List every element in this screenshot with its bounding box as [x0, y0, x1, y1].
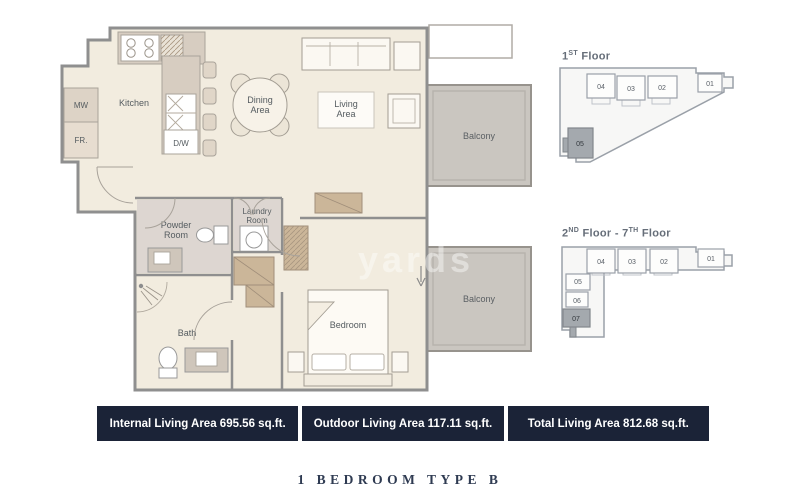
microwave-label: MW: [74, 101, 89, 110]
kp1-unit-01-label: 01: [706, 81, 714, 88]
kp2-title-s1: ND: [568, 227, 579, 234]
kp2-unit-04-label: 04: [597, 259, 605, 266]
kp1-title-sup: ST: [568, 50, 578, 57]
kp1-unit-05-label: 05: [576, 141, 584, 148]
dining-area-label-2: Area: [250, 105, 269, 115]
powder-room-label-1: Powder: [161, 220, 192, 230]
laundry-room-label-1: Laundry: [243, 207, 272, 216]
bedroom-label: Bedroom: [330, 320, 367, 330]
balcony-top-label: Balcony: [463, 131, 496, 141]
floorplan-page: MW FR. D/W Kitchen Dining Area Living Ar…: [0, 0, 800, 500]
kp2-unit-01-label: 01: [707, 256, 715, 263]
kp2-unit-03-label: 03: [628, 259, 636, 266]
kp2-unit-06-label: 06: [573, 298, 581, 305]
keyplan-first-floor-title: 1ST Floor: [562, 50, 610, 63]
area-summary-bar: Internal Living Area 695.56 sq.ft. Outdo…: [97, 406, 709, 441]
roof-ledge: [429, 25, 512, 58]
living-area-label-2: Area: [336, 109, 355, 119]
kp1-unit-02-label: 02: [658, 85, 666, 92]
kp2-title-t3: Floor: [639, 228, 671, 240]
living-area-label-1: Living: [334, 99, 358, 109]
kp2-unit-07-label: 07: [572, 316, 580, 323]
laundry-room-label-2: Room: [246, 216, 268, 225]
internal-area-badge: Internal Living Area 695.56 sq.ft.: [97, 406, 298, 441]
balcony-bottom-label: Balcony: [463, 294, 496, 304]
outdoor-area-badge: Outdoor Living Area 117.11 sq.ft.: [302, 406, 503, 441]
dishwasher-label: D/W: [173, 139, 189, 148]
keyplan-upper-floors: 04 03 02 01 05 06 07: [562, 247, 732, 337]
keyplan-first-floor: 04 03 02 01 05: [560, 68, 733, 162]
kp1-unit-04-label: 04: [597, 84, 605, 91]
watermark: yards: [358, 239, 474, 280]
total-area-badge: Total Living Area 812.68 sq.ft.: [508, 406, 709, 441]
page-title: 1 BEDROOM TYPE B: [0, 472, 800, 488]
powder-room-label-2: Room: [164, 230, 188, 240]
dining-area-label-1: Dining: [247, 95, 273, 105]
kp2-unit-02-label: 02: [660, 259, 668, 266]
kp1-title-rest: Floor: [578, 51, 610, 63]
keyplan-upper-floors-title: 2ND Floor - 7TH Floor: [562, 227, 671, 240]
kp2-title-t2: Floor - 7: [579, 228, 628, 240]
kp2-unit-05-label: 05: [574, 279, 582, 286]
kitchen-label: Kitchen: [119, 98, 149, 108]
kp2-title-s2: TH: [629, 227, 639, 234]
kp1-unit-03-label: 03: [627, 86, 635, 93]
bath-label: Bath: [178, 328, 197, 338]
fridge-label: FR.: [75, 136, 88, 145]
